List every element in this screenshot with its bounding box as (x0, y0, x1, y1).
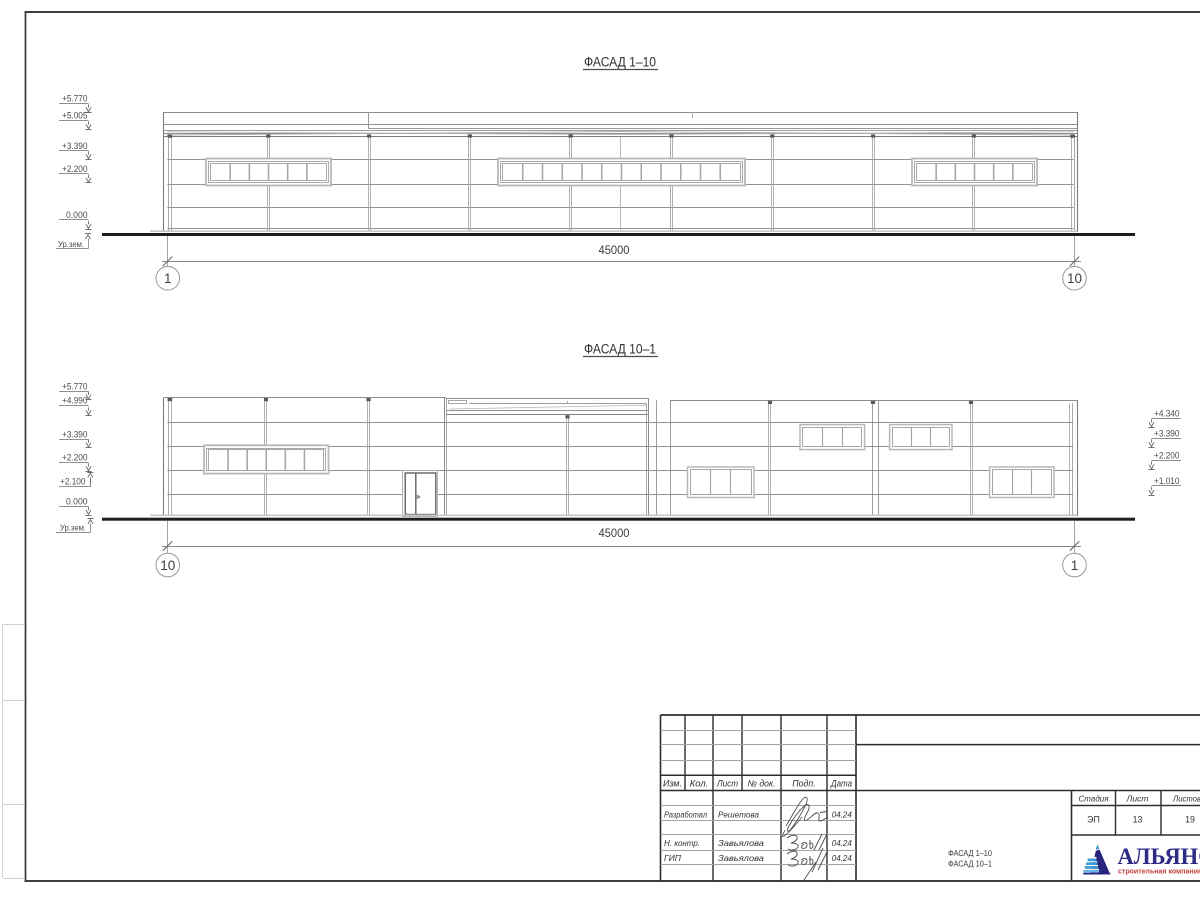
svg-text:+5.005: +5.005 (62, 111, 88, 121)
svg-text:ФАСАД 10–1: ФАСАД 10–1 (584, 342, 656, 358)
svg-text:№ док.: № док. (748, 779, 776, 789)
svg-text:Ур.зем.: Ур.зем. (60, 522, 86, 532)
svg-text:10: 10 (1067, 271, 1082, 286)
svg-text:ФАСАД 1–10: ФАСАД 1–10 (584, 54, 656, 70)
svg-text:+3.390: +3.390 (62, 429, 88, 439)
svg-text:Завьялова: Завьялова (718, 853, 764, 863)
svg-text:Лист: Лист (716, 779, 738, 789)
svg-text:+2.200: +2.200 (62, 452, 88, 462)
svg-text:19: 19 (1185, 814, 1195, 824)
svg-text:+2.200: +2.200 (62, 164, 88, 174)
svg-text:04.24: 04.24 (832, 853, 852, 863)
svg-text:Разработал: Разработал (664, 809, 707, 819)
svg-text:+2.100: +2.100 (60, 477, 86, 487)
svg-text:ГИП: ГИП (664, 853, 682, 863)
svg-text:Подп.: Подп. (792, 779, 816, 789)
svg-text:1: 1 (1071, 558, 1079, 573)
svg-text:ФАСАД 1–10: ФАСАД 1–10 (948, 848, 992, 858)
svg-text:+4.990: +4.990 (62, 396, 88, 406)
svg-text:0.000: 0.000 (66, 496, 88, 506)
svg-text:строительная компания: строительная компания (1118, 866, 1200, 875)
svg-text:04.24: 04.24 (832, 838, 852, 848)
svg-text:0.000: 0.000 (66, 210, 88, 220)
svg-text:Лист: Лист (1126, 793, 1149, 803)
svg-text:ФАСАД 10–1: ФАСАД 10–1 (948, 858, 992, 868)
svg-text:1: 1 (164, 271, 172, 286)
svg-text:Изм.: Изм. (663, 779, 682, 789)
svg-text:45000: 45000 (599, 528, 630, 540)
svg-text:45000: 45000 (599, 245, 630, 257)
svg-text:Решетова: Решетова (718, 809, 759, 819)
svg-text:Листов: Листов (1172, 793, 1200, 803)
svg-text:04.24: 04.24 (832, 809, 852, 819)
svg-text:10: 10 (160, 558, 175, 573)
svg-text:Завьялова: Завьялова (718, 838, 764, 848)
svg-text:+3.390: +3.390 (62, 141, 88, 151)
svg-text:ЭП: ЭП (1087, 814, 1100, 824)
svg-text:АЛЬЯНС: АЛЬЯНС (1118, 844, 1200, 869)
svg-text:+2.200: +2.200 (1154, 451, 1180, 461)
svg-text:Дата: Дата (830, 779, 852, 789)
svg-text:Н. контр.: Н. контр. (664, 838, 700, 848)
svg-text:+5.770: +5.770 (62, 381, 88, 391)
svg-text:+4.340: +4.340 (1154, 408, 1180, 418)
svg-text:+1.010: +1.010 (1154, 476, 1180, 486)
svg-text:+5.770: +5.770 (62, 93, 88, 103)
svg-text:13: 13 (1133, 814, 1143, 824)
svg-text:Ур.зем.: Ур.зем. (58, 239, 84, 249)
svg-text:Стадия: Стадия (1079, 793, 1109, 803)
svg-text:Кол.: Кол. (690, 779, 709, 789)
svg-text:+3.390: +3.390 (1154, 428, 1180, 438)
